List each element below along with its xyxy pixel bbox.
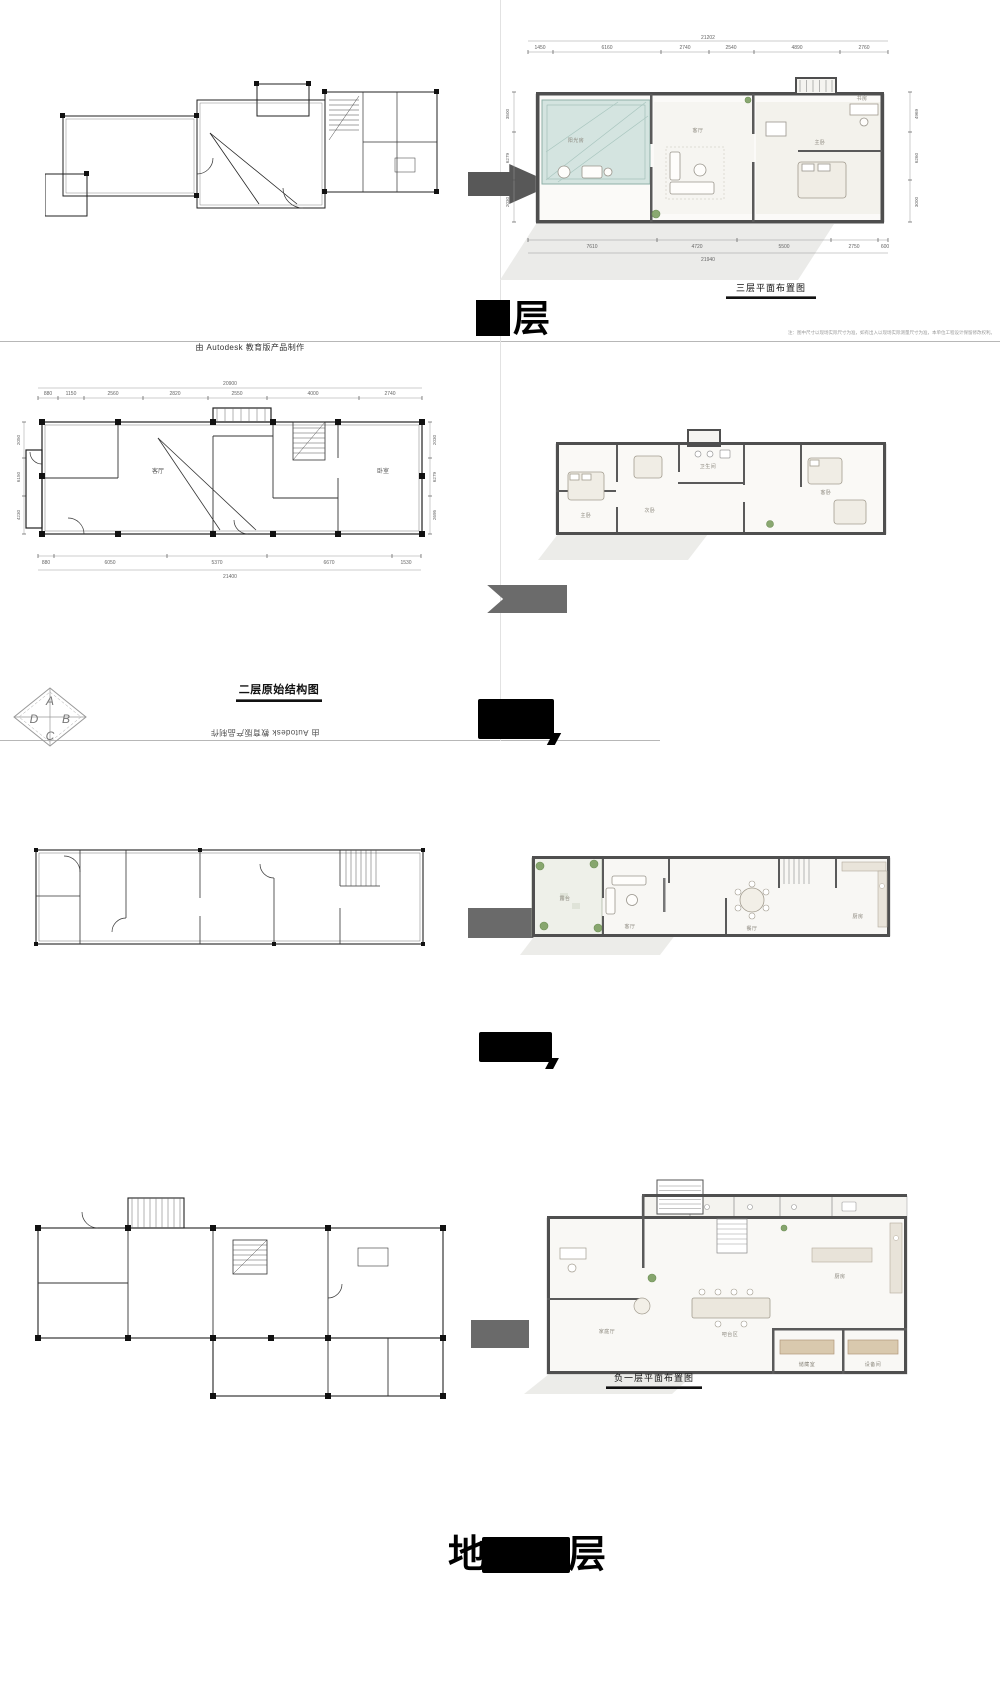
door-arcs [64, 856, 274, 932]
svg-text:6260: 6260 [914, 152, 919, 163]
svg-text:储藏室: 储藏室 [799, 1361, 816, 1368]
partitions [42, 422, 338, 534]
floor-label-cover [479, 1032, 552, 1062]
svg-text:21940: 21940 [701, 257, 715, 263]
svg-text:D: D [30, 712, 39, 726]
svg-text:20900: 20900 [223, 381, 237, 387]
third-floor-styled-plan: 1450 6160 2740 2540 4890 2760 21202 7610… [498, 32, 926, 290]
svg-text:客厅: 客厅 [624, 923, 635, 930]
floor-label-text: 地 [448, 1538, 486, 1573]
outer-walls [38, 1198, 443, 1396]
svg-text:主卧: 主卧 [814, 139, 825, 146]
plan-title-basement: 负一层平面布置图 [606, 1371, 702, 1389]
room-labels: 客厅 卧室 [152, 467, 389, 475]
floor-label-first [479, 1032, 556, 1062]
floor-label-text: 层 [513, 302, 550, 336]
svg-text:880: 880 [44, 391, 53, 397]
columns [60, 81, 439, 198]
basement-styled-plan: 家庭厅 吧台区 厨房 储藏室 设备间 [522, 1178, 922, 1396]
svg-text:家庭厅: 家庭厅 [599, 1328, 616, 1335]
stair [293, 422, 325, 460]
svg-text:厨房: 厨房 [852, 913, 863, 920]
svg-text:1450: 1450 [534, 45, 545, 51]
svg-text:2740: 2740 [384, 391, 395, 397]
svg-text:吧台区: 吧台区 [722, 1331, 739, 1338]
svg-text:6150: 6150 [16, 471, 21, 482]
compass-diamond-logo: A B C D [8, 686, 92, 748]
first-floor-original-plan [28, 838, 433, 956]
svg-text:露台: 露台 [559, 895, 570, 902]
stair-hatch [346, 850, 376, 886]
svg-text:餐厅: 餐厅 [746, 925, 757, 932]
svg-text:2560: 2560 [107, 391, 118, 397]
svg-text:A: A [45, 694, 54, 708]
svg-text:C: C [46, 729, 55, 743]
stair-shaft [796, 78, 836, 94]
svg-text:880: 880 [42, 560, 51, 566]
autodesk-watermark-mirrored: 由 Autodesk 教育版产品制作 [185, 727, 345, 738]
svg-text:2030: 2030 [432, 434, 437, 445]
door-arcs [82, 1212, 342, 1298]
floor-label-second [478, 699, 558, 739]
svg-text:2550: 2550 [231, 391, 242, 397]
svg-text:卫生间: 卫生间 [700, 463, 717, 470]
svg-text:设备间: 设备间 [865, 1361, 882, 1368]
svg-text:4000: 4000 [307, 391, 318, 397]
floor-label-top: 层 [476, 300, 550, 336]
door-arcs [30, 452, 248, 534]
svg-text:5500: 5500 [778, 244, 789, 250]
svg-text:3000: 3000 [914, 196, 919, 207]
living-floor [654, 102, 754, 214]
stair-hatch [329, 96, 359, 140]
svg-text:1530: 1530 [400, 560, 411, 566]
svg-text:21400: 21400 [223, 574, 237, 580]
svg-text:2050: 2050 [16, 434, 21, 445]
columns [35, 1225, 446, 1399]
autodesk-watermark-top: 由 Autodesk 教育版产品制作 [150, 342, 350, 353]
floor-label-text: 层 [568, 1538, 606, 1573]
svg-text:主卧: 主卧 [580, 512, 591, 519]
basement-original-plan [28, 1188, 453, 1403]
svg-text:4720: 4720 [691, 244, 702, 250]
title-underline [606, 1386, 702, 1389]
svg-text:2695: 2695 [432, 509, 437, 520]
floor-label-cover [476, 300, 510, 336]
svg-text:3500: 3500 [505, 108, 510, 119]
dimension-labels: 20900 880 1150 2560 2820 2550 4000 2740 … [16, 381, 437, 580]
svg-text:B: B [62, 712, 70, 726]
svg-text:卧室: 卧室 [377, 467, 389, 475]
outer-walls [26, 408, 422, 534]
first-floor-styled-plan: 露台 客厅 餐厅 厨房 [520, 838, 905, 956]
svg-text:7610: 7610 [586, 244, 597, 250]
inner-wall-line [39, 853, 420, 941]
svg-text:5370: 5370 [211, 560, 222, 566]
svg-text:客厅: 客厅 [152, 467, 164, 475]
top-stair-hatch [217, 408, 265, 422]
stair-center [717, 1219, 747, 1253]
drop-shadow [520, 934, 676, 955]
partitions [363, 92, 437, 192]
svg-text:书房: 书房 [856, 95, 867, 102]
outer-walls [36, 850, 423, 944]
svg-text:厨房: 厨房 [834, 1273, 845, 1280]
svg-text:6160: 6160 [601, 45, 612, 51]
svg-text:4230: 4230 [16, 509, 21, 520]
stair-inner [233, 1240, 267, 1274]
horizontal-rule-middle [0, 740, 660, 741]
second-floor-styled-plan: 主卧 次卧 卫生间 客卧 [538, 412, 898, 562]
floor-label-cover [478, 699, 554, 739]
third-floor-original-plan [45, 78, 440, 228]
drop-shadow [538, 534, 708, 560]
svg-text:2540: 2540 [725, 45, 736, 51]
svg-text:次卧: 次卧 [644, 507, 655, 514]
svg-text:2820: 2820 [169, 391, 180, 397]
columns [34, 848, 425, 946]
drop-shadow [500, 224, 834, 280]
stair-hatch-top [132, 1198, 180, 1228]
svg-text:2030: 2030 [505, 196, 510, 207]
partitions [36, 850, 380, 944]
plan-title-second-floor: 二层原始结构图 [236, 681, 322, 702]
title-underline [726, 296, 816, 299]
outer-walls [45, 84, 437, 216]
svg-text:6050: 6050 [104, 560, 115, 566]
svg-text:客厅: 客厅 [692, 127, 703, 134]
svg-text:2750: 2750 [848, 244, 859, 250]
svg-text:2760: 2760 [858, 45, 869, 51]
svg-text:4969: 4969 [914, 108, 919, 119]
roof-slope-lines [158, 438, 256, 530]
floorplan-sheet: 1450 6160 2740 2540 4890 2760 21202 7610… [0, 0, 1000, 1690]
transform-arrow-icon [471, 1320, 529, 1348]
plan-title-third-floor: 三层平面布置图 [726, 281, 816, 299]
floor-label-cover [482, 1537, 570, 1573]
second-floor-original-plan: 20900 880 1150 2560 2820 2550 4000 2740 … [8, 378, 446, 593]
plant [767, 521, 774, 528]
svg-text:1150: 1150 [66, 391, 77, 397]
dimension-lines [22, 388, 432, 570]
svg-text:6279: 6279 [432, 471, 437, 482]
floor-label-basement: 地 层 [448, 1537, 606, 1573]
svg-text:21202: 21202 [701, 35, 715, 41]
title-underline [236, 699, 322, 702]
svg-text:4890: 4890 [791, 45, 802, 51]
svg-text:阳光房: 阳光房 [568, 137, 585, 144]
svg-text:客卧: 客卧 [820, 489, 831, 496]
svg-text:600: 600 [881, 244, 890, 250]
transform-arrow-icon [483, 585, 567, 613]
disclaimer-note: 注：图中尺寸以现场实际尺寸为准，如有出入以现场实际测量尺寸为准，本单位工程设计保… [780, 330, 995, 336]
inner-wall-lines [66, 103, 322, 205]
svg-text:2740: 2740 [679, 45, 690, 51]
svg-text:6670: 6670 [323, 560, 334, 566]
svg-text:6279: 6279 [505, 152, 510, 163]
